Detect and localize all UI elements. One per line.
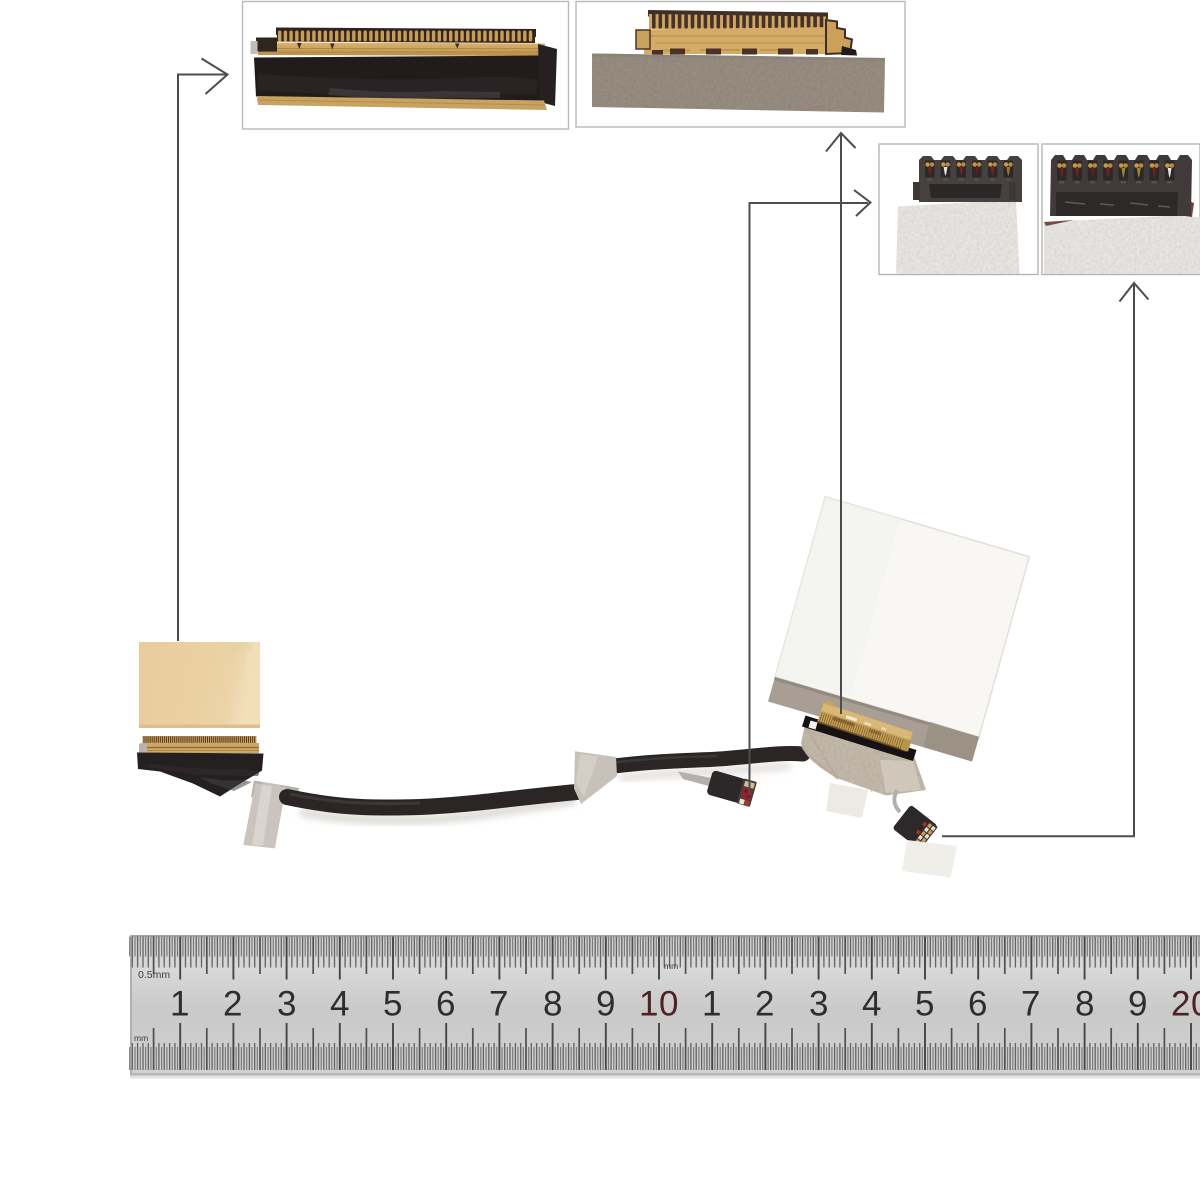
- svg-text:9: 9: [1128, 985, 1148, 1024]
- svg-text:9: 9: [596, 985, 616, 1024]
- svg-text:10: 10: [639, 985, 679, 1024]
- svg-text:6: 6: [436, 985, 456, 1024]
- svg-text:1: 1: [702, 985, 722, 1024]
- svg-text:0.5mm: 0.5mm: [138, 969, 170, 981]
- svg-text:4: 4: [862, 985, 882, 1024]
- svg-text:3: 3: [809, 985, 829, 1024]
- svg-text:1: 1: [170, 985, 190, 1024]
- svg-text:mm: mm: [134, 1033, 148, 1043]
- svg-text:8: 8: [543, 985, 563, 1024]
- svg-text:5: 5: [915, 985, 935, 1024]
- svg-text:mm: mm: [664, 961, 678, 971]
- svg-text:4: 4: [330, 985, 350, 1024]
- svg-text:7: 7: [1021, 985, 1041, 1024]
- svg-text:6: 6: [968, 985, 988, 1024]
- svg-text:2: 2: [755, 985, 775, 1024]
- svg-text:7: 7: [489, 985, 509, 1024]
- svg-text:5: 5: [383, 985, 403, 1024]
- svg-text:3: 3: [277, 985, 297, 1024]
- svg-text:8: 8: [1075, 985, 1095, 1024]
- svg-text:2: 2: [223, 985, 243, 1024]
- svg-text:20: 20: [1171, 985, 1200, 1024]
